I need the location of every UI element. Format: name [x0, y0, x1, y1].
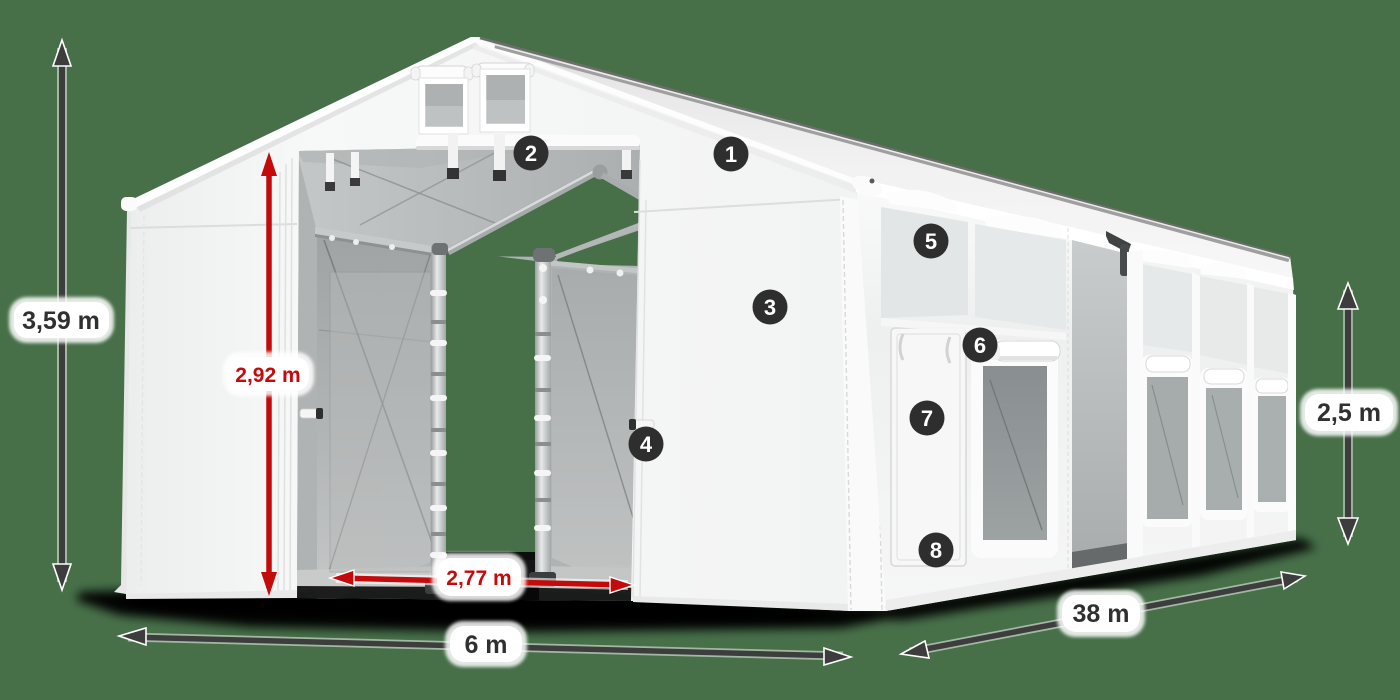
- svg-text:2,5 m: 2,5 m: [1317, 399, 1381, 427]
- svg-text:3: 3: [764, 295, 776, 320]
- svg-text:4: 4: [640, 432, 653, 457]
- svg-text:1: 1: [725, 142, 737, 167]
- svg-text:6 m: 6 m: [464, 631, 507, 659]
- svg-text:5: 5: [925, 229, 937, 254]
- svg-text:6: 6: [974, 333, 986, 358]
- svg-text:2,77 m: 2,77 m: [446, 567, 511, 590]
- svg-text:3,59 m: 3,59 m: [22, 307, 100, 335]
- svg-text:7: 7: [921, 406, 933, 431]
- svg-text:2,92 m: 2,92 m: [235, 364, 300, 387]
- svg-text:2: 2: [525, 141, 537, 166]
- svg-text:38 m: 38 m: [1073, 600, 1130, 628]
- svg-text:8: 8: [930, 538, 942, 563]
